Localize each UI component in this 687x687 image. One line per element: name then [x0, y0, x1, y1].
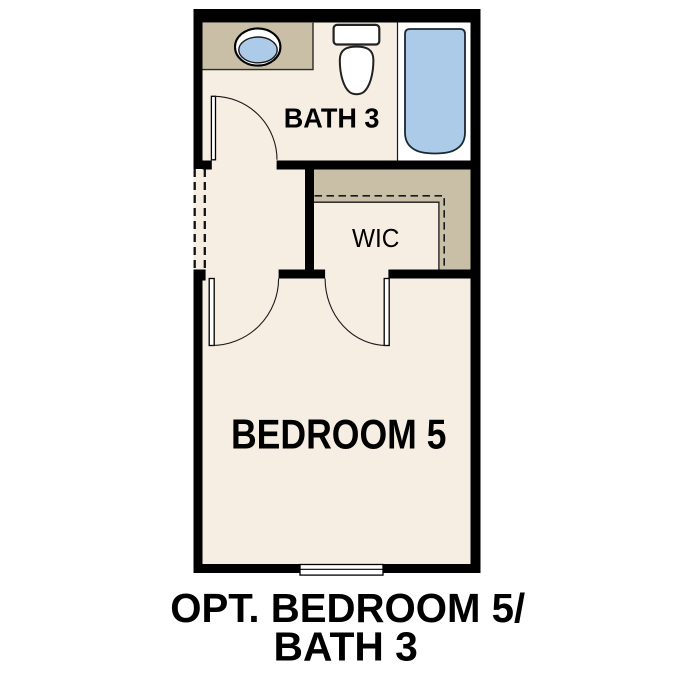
svg-text:BEDROOM 5: BEDROOM 5: [231, 412, 447, 458]
svg-text:WIC: WIC: [352, 225, 400, 253]
svg-text:BATH 3: BATH 3: [284, 103, 380, 134]
svg-text:BATH 3: BATH 3: [274, 624, 418, 670]
